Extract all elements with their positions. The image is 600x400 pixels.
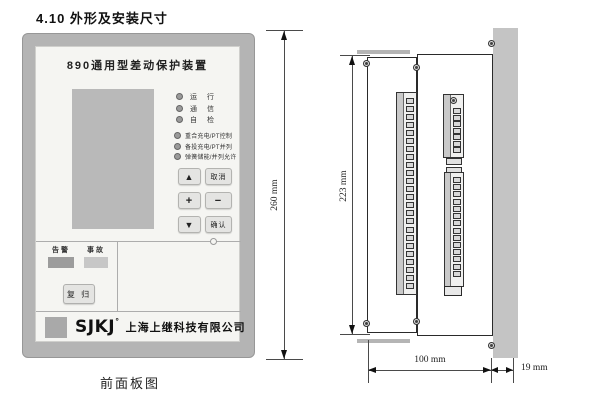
key-cancel-button: 取消: [205, 168, 232, 185]
dim260-tick-bottom: [266, 359, 303, 360]
led-selftest-icon: [176, 116, 183, 123]
terminal-strip-left: [396, 92, 417, 295]
key-confirm-button: 确认: [205, 216, 232, 233]
reset-button: 复 归: [63, 284, 95, 304]
front-panel-caption: 前面板图: [90, 373, 170, 392]
fault-label: 事故: [81, 245, 111, 255]
dim260-label: 260 mm: [270, 179, 280, 210]
led-comm-label: 通 信: [190, 104, 218, 114]
dim260-line: [284, 31, 285, 359]
mounting-panel-bar: [493, 28, 518, 358]
panel-screw-hole-icon: [210, 238, 217, 245]
lcd-screen: [72, 89, 154, 229]
dim19-ext-right: [513, 358, 514, 383]
terminal-strip-upper-rail: [444, 95, 451, 157]
device-title: 890通用型差动保护装置: [36, 57, 239, 73]
section-heading: 4.10 外形及安装尺寸: [36, 8, 168, 27]
screw-icon: [413, 318, 420, 325]
screw-icon: [363, 60, 370, 67]
led-row-comm: 通 信: [176, 104, 218, 113]
dim19-label: 19 mm: [521, 363, 548, 373]
alarm-label: 告警: [46, 245, 76, 255]
led-row-reclose: 重合充电/PT控制: [174, 131, 232, 140]
terminal-strip-right-lower: [444, 172, 464, 287]
dim100-line: [368, 370, 491, 371]
led-reclose-icon: [174, 132, 181, 139]
screw-icon: [488, 40, 495, 47]
terminal-strip-left-cells: [404, 93, 416, 294]
screw-icon: [363, 320, 370, 327]
led-spring-label: 弹簧储能/并列允许: [185, 152, 236, 161]
dim260-arrow-down-icon: [281, 350, 287, 359]
led-comm-icon: [176, 105, 183, 112]
led-row-backup: 备投充电/PT并列: [174, 142, 232, 151]
dim223-ext-bottom: [340, 334, 370, 335]
bezel-flange-top: [357, 50, 410, 54]
key-minus-button: −: [205, 192, 232, 209]
front-panel-drawing: 890通用型差动保护装置 运 行 通 信 自 检 重合充电/PT控制: [22, 33, 255, 358]
key-up-button: ▲: [178, 168, 201, 185]
front-panel-face: 890通用型差动保护装置 运 行 通 信 自 检 重合充电/PT控制: [35, 46, 240, 342]
key-plus-button: +: [178, 192, 201, 209]
led-backup-icon: [174, 143, 181, 150]
registered-mark: °: [115, 317, 120, 326]
dim223-line: [352, 56, 353, 334]
screw-icon: [450, 97, 457, 104]
dim260-arrow-up-icon: [281, 31, 287, 40]
led-row-run: 运 行: [176, 92, 218, 101]
dim223-label: 223 mm: [339, 170, 349, 201]
terminal-strip-left-rail: [397, 93, 404, 294]
led-run-icon: [176, 93, 183, 100]
brand-logo-text: SJKJ°: [75, 317, 120, 337]
terminal-strip-lower-cells: [451, 173, 463, 286]
led-reclose-label: 重合充电/PT控制: [185, 131, 232, 140]
dim100-ext-left: [368, 340, 369, 383]
brand-logo-square: [45, 317, 67, 338]
led-spring-icon: [174, 153, 181, 160]
fault-indicator: [84, 257, 108, 268]
panel-divider-vertical: [117, 241, 118, 311]
dim223-arrow-down-icon: [349, 325, 355, 334]
dim223-arrow-up-icon: [349, 56, 355, 65]
dim100-arrow-left-icon: [368, 367, 376, 373]
brand-band: SJKJ° 上海上继科技有限公司: [36, 311, 239, 343]
led-row-selftest: 自 检: [176, 115, 218, 124]
dim223-ext-top: [340, 55, 370, 56]
screw-icon: [413, 64, 420, 71]
key-down-button: ▼: [178, 216, 201, 233]
led-row-spring: 弹簧储能/并列允许: [174, 152, 236, 161]
bezel-flange-bottom: [357, 339, 410, 343]
brand-company-name: 上海上继科技有限公司: [126, 319, 246, 335]
screw-icon: [488, 342, 495, 349]
terminal-strip-upper-cells: [451, 95, 463, 157]
dim19-arrow-left-icon: [491, 367, 498, 373]
led-selftest-label: 自 检: [190, 115, 218, 125]
dim100-label: 100 mm: [395, 355, 465, 365]
manual-page: 4.10 外形及安装尺寸 890通用型差动保护装置 运 行 通 信 自 检 重合: [0, 0, 600, 400]
alarm-indicator: [48, 257, 74, 268]
dim19-arrow-right-icon: [506, 367, 513, 373]
led-run-label: 运 行: [190, 92, 218, 102]
led-backup-label: 备投充电/PT并列: [185, 142, 232, 151]
terminal-strip-bottom-cap: [444, 286, 462, 296]
dim100-arrow-right-icon: [483, 367, 491, 373]
